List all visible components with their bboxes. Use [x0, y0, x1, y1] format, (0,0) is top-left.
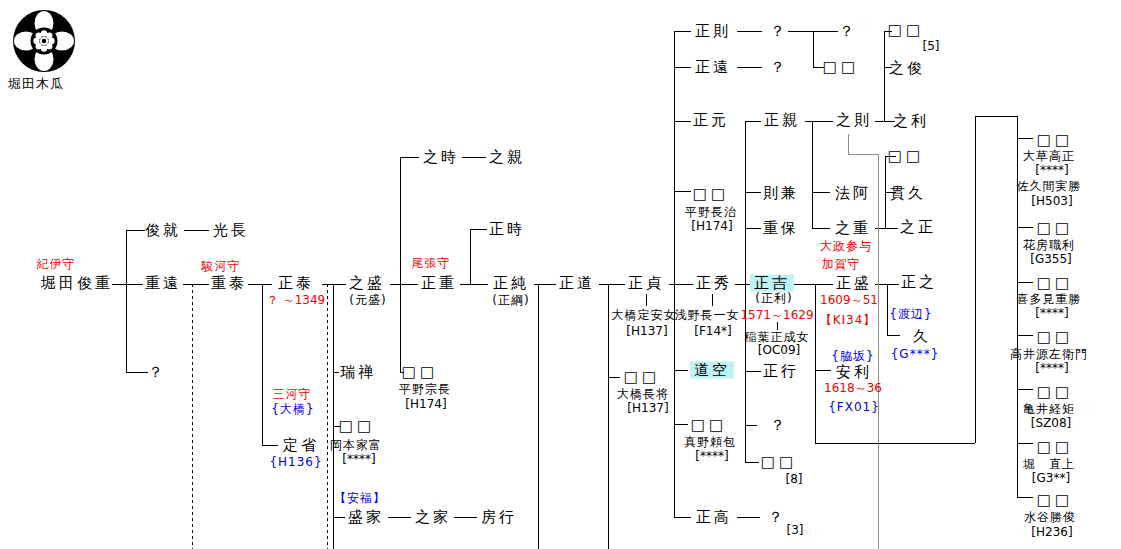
person-yukiie: 之家 — [415, 510, 451, 525]
person-masamoto: 正元 — [693, 113, 729, 128]
person-yasutoshi: 安利 — [836, 365, 872, 380]
person-box5: □□ — [888, 23, 924, 38]
ref-mano: [****] — [695, 450, 728, 462]
person-masayoshi-highlighted: 正吉 — [750, 275, 794, 292]
person-yukishige-daughter: □□ — [888, 149, 924, 164]
person-yukinori: 之則 — [836, 113, 872, 128]
person-masayuki: 正行 — [763, 364, 799, 379]
spouse-hori-naokami: 堀 直上 — [1023, 458, 1075, 470]
person-masatoo: 正遠 — [695, 60, 731, 75]
person-masasada: 正貞 — [628, 276, 664, 291]
title-owari-no-kami: 尾張守 — [412, 257, 451, 269]
ref-kitami: [****] — [1035, 307, 1068, 319]
person-yukitoshi-r: 之利 — [893, 114, 929, 129]
spouse-hanabusa-motitoshi: 花房職利 — [1023, 239, 1075, 251]
person-daughter-7: □□ — [1037, 493, 1073, 508]
altname-masayoshi: (正利) — [755, 292, 792, 304]
ref-sakuma: [H503] — [1031, 195, 1072, 207]
family-watanabe-link[interactable]: {渡辺} — [889, 308, 932, 320]
person-daughter-2: □□ — [1037, 221, 1073, 236]
title-kii-no-kami: 紀伊守 — [37, 258, 76, 270]
person-sadami: 定省 — [283, 438, 319, 453]
person-hoa: 法阿 — [835, 186, 871, 201]
altname-masazumi: (正綱) — [492, 294, 529, 306]
person-yukimasa: 之正 — [900, 220, 936, 235]
person-unknown-gen2: ？ — [148, 365, 166, 380]
ref-okusa: [****] — [1035, 164, 1068, 176]
person-daughter-6: □□ — [1037, 440, 1073, 455]
person-ohashi-daughter: □□ — [624, 370, 660, 385]
person-hotta-toshishige: 堀田俊重 — [41, 276, 113, 291]
person-masahide: 正秀 — [696, 276, 732, 291]
title-mikawa-no-kami: 三河守 — [273, 388, 312, 400]
wife-masahide: 浅野長一女 — [675, 309, 740, 321]
person-masamori: 正盛 — [836, 276, 872, 291]
person-tsurahisa: 貫久 — [890, 186, 926, 201]
person-yukimori: 之盛 — [349, 276, 385, 291]
crest-label: 堀田木瓜 — [8, 77, 64, 90]
person-zuizen: 瑞禅 — [340, 365, 376, 380]
person-hirano-wife1: □□ — [402, 365, 438, 380]
person-masataka: 正高 — [696, 510, 732, 525]
person-okamoto-daughter: □□ — [339, 419, 375, 434]
spouse-hirano-nagaharu: 平野長治 — [685, 206, 737, 218]
family-ohashi-link[interactable]: {大橋} — [271, 403, 314, 415]
person-masazumi: 正純 — [493, 276, 529, 291]
person-daughter-3: □□ — [1037, 276, 1073, 291]
ref-box5: [5] — [923, 40, 940, 52]
ref-hisa-link[interactable]: {G***} — [891, 348, 940, 360]
ref-yasutoshi-link[interactable]: {FX01} — [828, 401, 880, 413]
person-morie: 盛家 — [348, 510, 384, 525]
person-hirano-wife2: □□ — [693, 187, 729, 202]
ref-box8: [8] — [786, 473, 803, 485]
ref-masamori: 【KI34】 — [820, 314, 877, 326]
person-masahide-q: ？ — [770, 418, 788, 433]
person-norikane: 則兼 — [763, 186, 799, 201]
person-daughter-4: □□ — [1037, 330, 1073, 345]
person-masamichi: 正道 — [559, 276, 595, 291]
genealogy-chart: 堀田木瓜 紀伊守 堀田俊重 俊就 光長 重遠 駿河守 重泰 ？ 正泰 ？ ～13… — [0, 0, 1121, 549]
spouse-hirano-munenaga: 平野宗長 — [399, 383, 451, 395]
title-suruga-no-kami: 駿河守 — [202, 260, 241, 272]
ref-hirano-nagaharu: [H174] — [691, 220, 732, 232]
ref-wife-masasada: [H137] — [626, 325, 667, 337]
person-box8: □□ — [761, 455, 797, 470]
spouse-mizunoya-katsutoshi: 水谷勝俊 — [1024, 511, 1076, 523]
person-masashige: 正重 — [421, 276, 457, 291]
spouse-mano-yorikane: 真野頼包 — [684, 436, 736, 448]
dates-masamori: 1609～51 — [820, 294, 878, 306]
ref-mizunoya: [H236] — [1031, 526, 1072, 538]
person-masayasu: 正泰 — [278, 276, 314, 291]
hotta-mokko-crest-icon — [11, 8, 77, 74]
ref-kamei: [SZ08] — [1031, 417, 1071, 429]
spouse-kitami-shigekatsu: 喜多見重勝 — [1017, 293, 1082, 305]
ref-ohashi: [H137] — [627, 402, 668, 414]
wife-masayoshi: 稲葉正成女 — [745, 331, 810, 343]
person-grandchild-box: □□ — [823, 60, 859, 75]
person-shigeyasu: 重泰 — [211, 276, 247, 291]
spouse-okusa-takamasa: 大草高正 — [1023, 150, 1075, 162]
spouse-okamoto-iefuji: 岡本家富 — [330, 439, 382, 451]
person-toshinari: 俊就 — [145, 223, 181, 238]
ref-wife-masahide: [F14*] — [694, 325, 732, 337]
spouse-kamei-tsunenori: 亀井経矩 — [1023, 403, 1075, 415]
ref-hirano-munenaga: [H174] — [405, 398, 446, 410]
dates-masayoshi: 1571～1629 — [740, 309, 813, 321]
altname-yukimori: (元盛) — [349, 294, 386, 306]
ref-hanabusa: [G355] — [1030, 253, 1072, 265]
wife-masasada: 大橋定安女 — [612, 309, 677, 321]
ref-wife-masayoshi: [OC09] — [758, 344, 800, 356]
person-fusayuki: 房行 — [481, 510, 517, 525]
person-doku-highlighted: 道空 — [690, 362, 734, 379]
person-masatoki: 正時 — [489, 222, 525, 237]
person-daughter-1: □□ — [1037, 133, 1073, 148]
person-masataka-child: ？ — [768, 510, 786, 525]
dates-masayasu: ？ ～1349 — [267, 294, 325, 306]
person-masatoo-child: ？ — [770, 60, 788, 75]
person-grandchild-q: ？ — [839, 24, 857, 39]
ref-hori: [G3**] — [1032, 472, 1070, 484]
person-shigeyasu-b: 重保 — [763, 221, 799, 236]
dates-yasutoshi: 1618～36 — [824, 382, 882, 394]
ref-takai: [****] — [1035, 362, 1068, 374]
person-yukichika: 之親 — [489, 150, 525, 165]
ref-masataka-child: [3] — [787, 524, 804, 536]
spouse-takai-genzaemon: 高井源左衛門 — [1010, 348, 1088, 360]
person-daughter-5: □□ — [1037, 385, 1073, 400]
person-yukishige: 之重 — [835, 221, 871, 236]
person-hisa: 久 — [913, 329, 931, 344]
person-shigetoo: 重遠 — [145, 276, 181, 291]
person-masanori: 正則 — [695, 24, 731, 39]
title-kaga-no-kami: 加賀守 — [822, 258, 861, 270]
person-yukitoki: 之時 — [423, 150, 459, 165]
person-masachika: 正親 — [764, 113, 800, 128]
ref-sadami-link[interactable]: {H136} — [269, 456, 322, 468]
person-mitsunaga: 光長 — [213, 223, 249, 238]
person-mano-daughter: □□ — [691, 418, 727, 433]
title-daiseisanyo: 大政参与 — [820, 240, 872, 252]
family-anpuku-link[interactable]: 【安福】 — [334, 492, 386, 504]
family-wakisaka-link[interactable]: {脇坂} — [831, 350, 874, 362]
spouse-ohashi-nagamasa: 大橋長将 — [617, 388, 669, 400]
person-yukitoshi: 之俊 — [889, 61, 925, 76]
person-masanori-child: ？ — [770, 24, 788, 39]
ref-okamoto: [****] — [342, 453, 375, 465]
person-masayuki-m: 正之 — [901, 275, 937, 290]
spouse-sakuma-sanekatsu: 佐久間実勝 — [1017, 180, 1082, 192]
